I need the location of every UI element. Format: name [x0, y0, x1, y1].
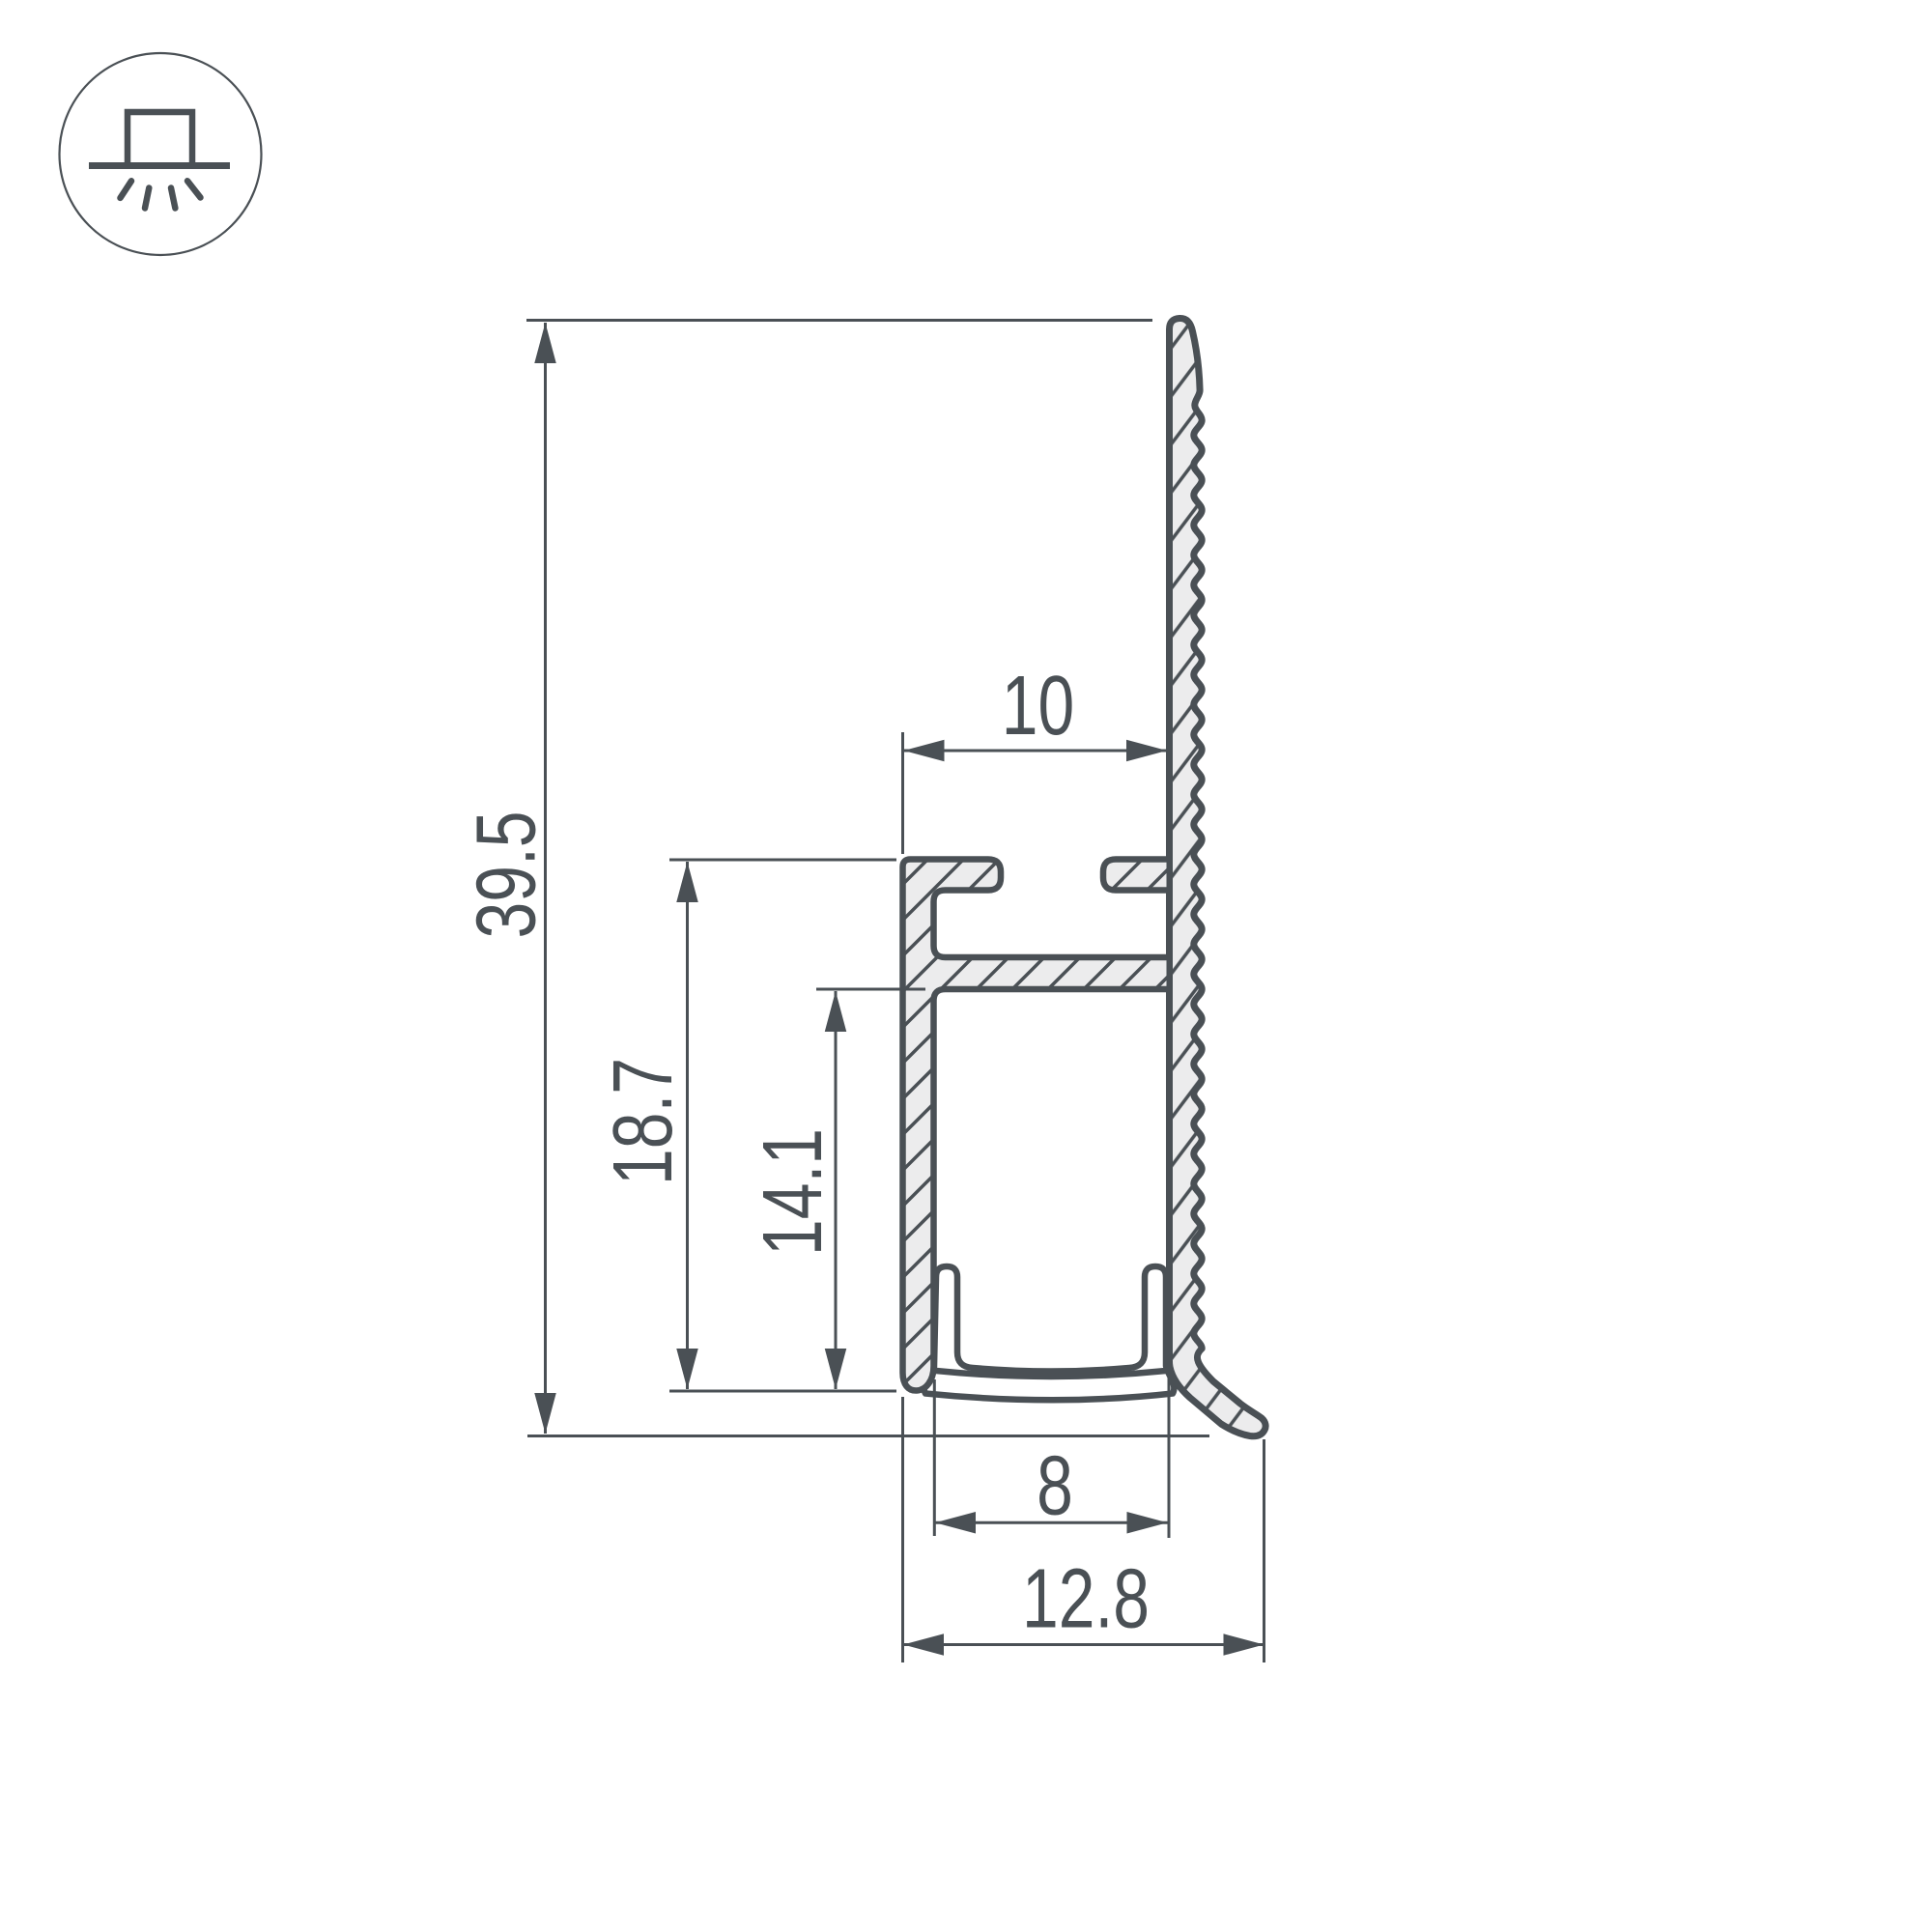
svg-text:8: 8	[1037, 1437, 1073, 1532]
svg-text:10: 10	[1002, 658, 1074, 753]
svg-text:39.5: 39.5	[458, 810, 553, 938]
svg-text:14.1: 14.1	[745, 1128, 839, 1256]
svg-text:12.8: 12.8	[1022, 1550, 1150, 1645]
svg-text:18.7: 18.7	[595, 1058, 690, 1185]
